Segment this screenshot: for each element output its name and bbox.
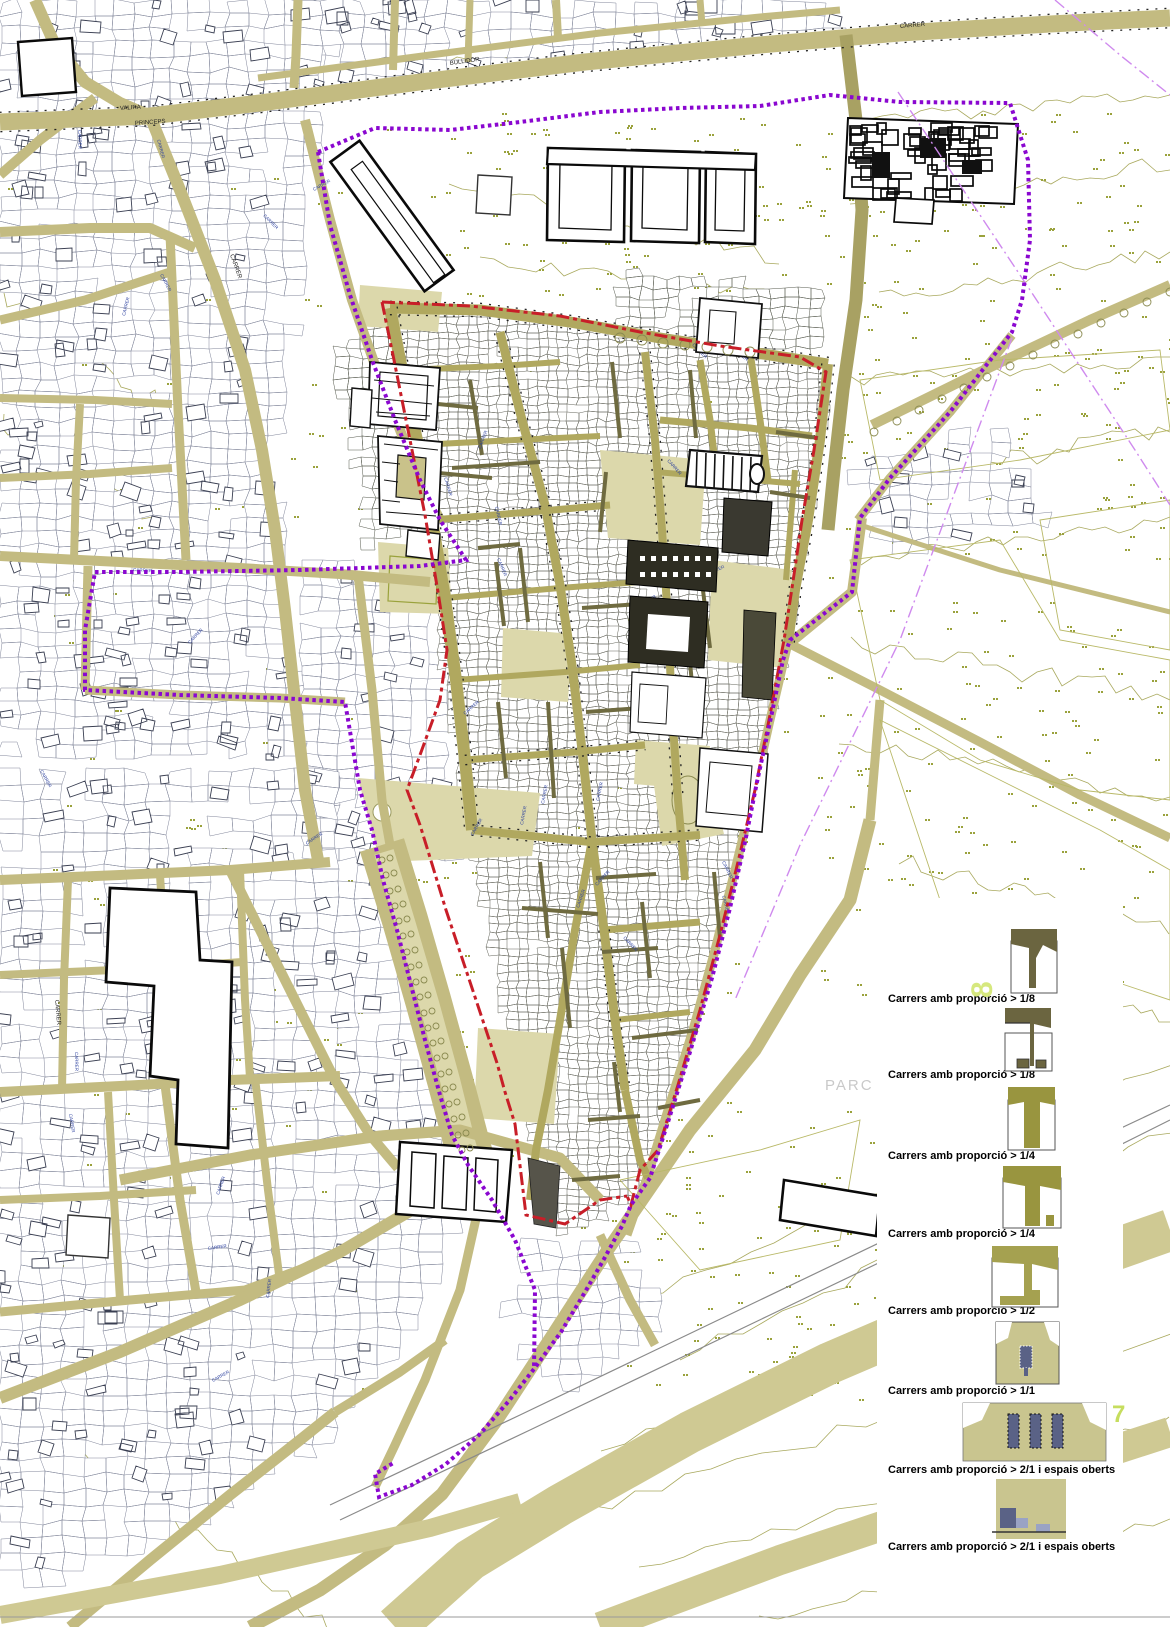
svg-text:Carrers amb proporció > 1/8: Carrers amb proporció > 1/8 (888, 993, 1035, 1005)
svg-text:PARC: PARC (825, 1077, 874, 1094)
svg-text:8: 8 (966, 981, 999, 998)
svg-text:Carrers amb proporció > 1/4: Carrers amb proporció > 1/4 (888, 1228, 1036, 1240)
svg-text:Carrers amb proporció > 2/1 i: Carrers amb proporció > 2/1 i espais obe… (888, 1541, 1115, 1553)
svg-text:Carrers amb proporció > 1/1: Carrers amb proporció > 1/1 (888, 1385, 1035, 1397)
svg-text:CARRER: CARRER (77, 130, 83, 150)
svg-text:Carrers amb proporció > 1/4: Carrers amb proporció > 1/4 (888, 1150, 1036, 1162)
svg-text:Carrers amb proporció > 2/1 i: Carrers amb proporció > 2/1 i espais obe… (888, 1464, 1115, 1476)
svg-text:CARRER: CARRER (74, 1052, 79, 1072)
svg-text:7: 7 (1112, 1401, 1125, 1428)
